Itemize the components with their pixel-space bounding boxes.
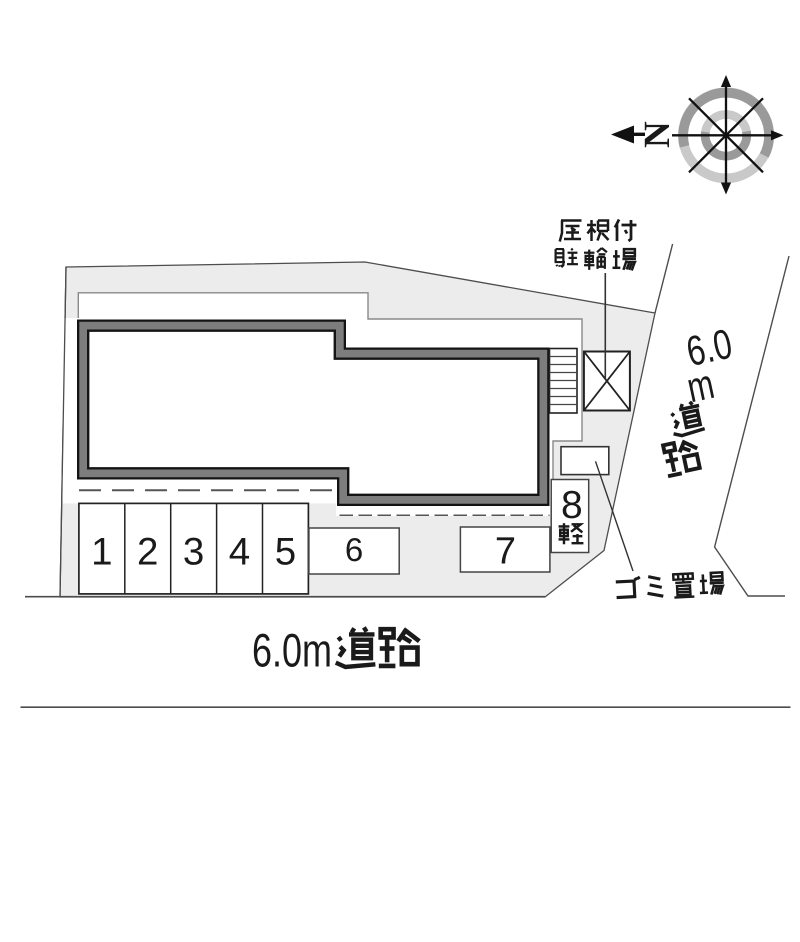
svg-text:1: 1: [91, 531, 112, 574]
svg-text:5: 5: [275, 531, 296, 574]
svg-text:3: 3: [183, 531, 204, 574]
svg-text:2: 2: [137, 531, 158, 574]
svg-text:6.0m: 6.0m: [252, 624, 332, 677]
svg-text:7: 7: [495, 531, 516, 573]
svg-text:4: 4: [229, 531, 250, 574]
svg-text:8: 8: [561, 484, 583, 527]
svg-text:6: 6: [345, 531, 363, 568]
svg-text:N: N: [637, 121, 678, 148]
